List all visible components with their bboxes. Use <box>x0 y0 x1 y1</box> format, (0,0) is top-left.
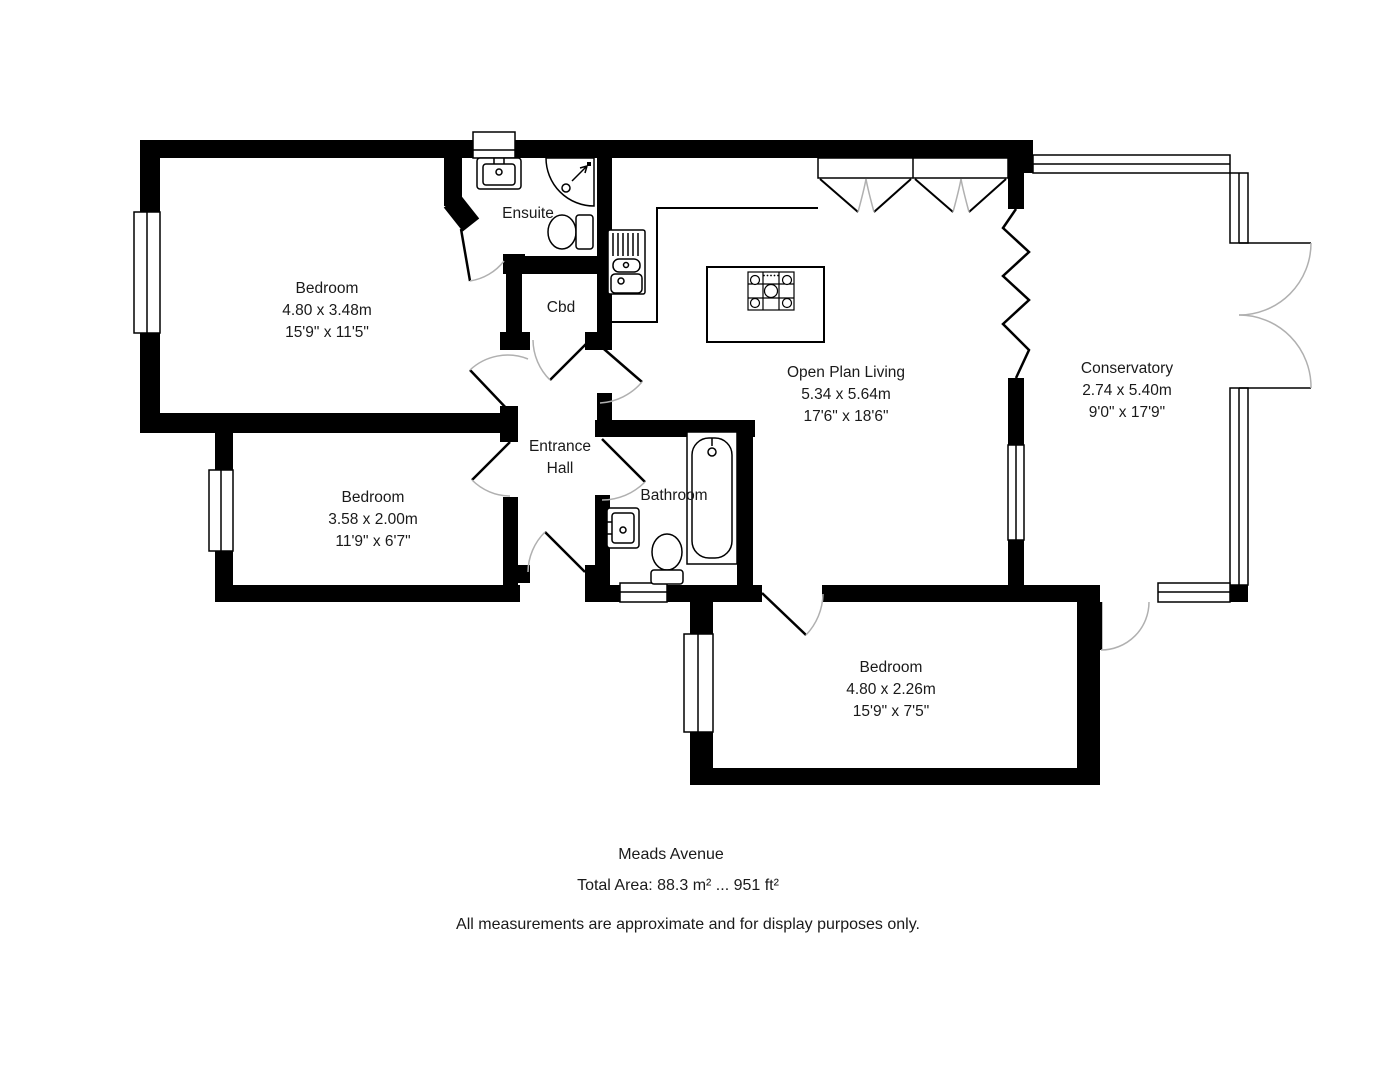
zigzag-opening <box>1003 209 1029 378</box>
total-area-text: Total Area: 88.3 m² ... 951 ft² <box>577 877 779 895</box>
room-label-cupboard: Cbd <box>547 297 575 319</box>
disclaimer-text: All measurements are approximate and for… <box>456 916 920 934</box>
window <box>209 470 233 551</box>
window <box>620 583 667 602</box>
window <box>1158 583 1230 602</box>
window <box>1033 155 1230 173</box>
toilet-icon <box>651 534 683 584</box>
window <box>1008 445 1024 540</box>
floorplan-page: Bedroom 4.80 x 3.48m 15'9" x 11'5" Ensui… <box>0 0 1387 1080</box>
room-dim-imperial: 17'6" x 18'6" <box>787 406 905 428</box>
room-name: Bedroom <box>846 657 936 679</box>
window <box>134 212 160 333</box>
bifold-doors <box>818 158 1008 212</box>
address-title: Meads Avenue <box>618 846 724 864</box>
door <box>533 340 590 380</box>
door <box>472 442 510 496</box>
room-name: Open Plan Living <box>787 362 905 384</box>
room-name: Bedroom <box>328 487 418 509</box>
room-dim-imperial: 15'9" x 7'5" <box>846 701 936 723</box>
room-label-entrance-hall: Entrance Hall <box>514 436 606 480</box>
door <box>1101 602 1149 650</box>
room-name: Ensuite <box>502 203 554 225</box>
room-dim-imperial: 9'0" x 17'9" <box>1081 402 1173 424</box>
door <box>762 593 823 635</box>
ensuite-sink-icon <box>477 158 521 189</box>
room-dim-metric: 2.74 x 5.40m <box>1081 380 1173 402</box>
room-name: Cbd <box>547 297 575 319</box>
room-label-ensuite: Ensuite <box>502 203 554 225</box>
door <box>461 229 504 281</box>
door <box>470 355 528 410</box>
ensuite-toilet-icon <box>548 215 593 249</box>
window <box>473 132 515 158</box>
room-dim-metric: 4.80 x 2.26m <box>846 679 936 701</box>
room-dim-metric: 3.58 x 2.00m <box>328 509 418 531</box>
room-dim-metric: 5.34 x 5.64m <box>787 384 905 406</box>
french-doors <box>1239 243 1311 388</box>
room-label-bathroom: Bathroom <box>640 485 707 507</box>
room-dim-metric: 4.80 x 3.48m <box>282 300 372 322</box>
kitchen-sink-icon <box>608 230 645 294</box>
bathroom-sink-icon <box>607 508 639 548</box>
room-label-conservatory: Conservatory 2.74 x 5.40m 9'0" x 17'9" <box>1081 358 1173 424</box>
room-label-bedroom1: Bedroom 4.80 x 3.48m 15'9" x 11'5" <box>282 278 372 344</box>
room-name: Bedroom <box>282 278 372 300</box>
window <box>684 634 713 732</box>
room-name: Entrance Hall <box>529 438 591 477</box>
front-door <box>528 532 585 572</box>
window <box>1230 173 1248 243</box>
room-name: Bathroom <box>640 485 707 507</box>
room-dim-imperial: 15'9" x 11'5" <box>282 322 372 344</box>
room-label-bedroom2: Bedroom 3.58 x 2.00m 11'9" x 6'7" <box>328 487 418 553</box>
room-label-open-plan-living: Open Plan Living 5.34 x 5.64m 17'6" x 18… <box>787 362 905 428</box>
window <box>1230 388 1248 585</box>
room-label-bedroom3: Bedroom 4.80 x 2.26m 15'9" x 7'5" <box>846 657 936 723</box>
shower-icon <box>546 158 594 206</box>
door <box>602 439 645 500</box>
room-dim-imperial: 11'9" x 6'7" <box>328 531 418 553</box>
hob-icon <box>748 272 794 310</box>
room-name: Conservatory <box>1081 358 1173 380</box>
